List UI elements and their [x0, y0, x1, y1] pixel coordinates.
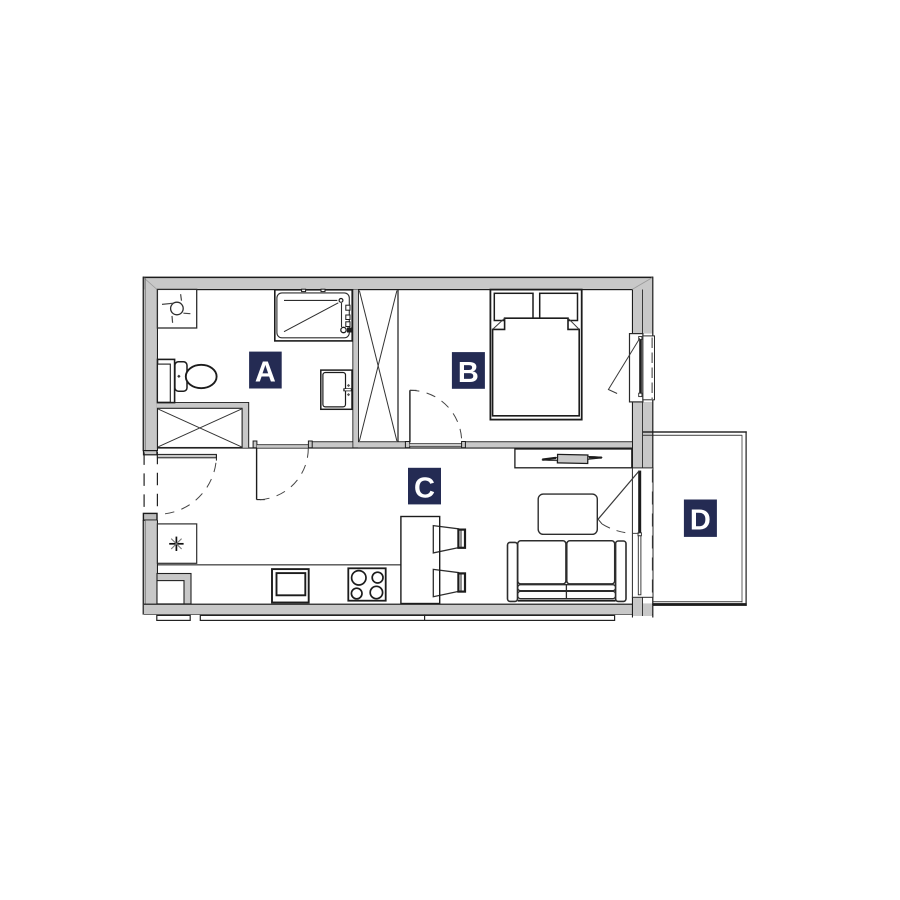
svg-text:C: C: [414, 473, 435, 505]
svg-text:D: D: [690, 504, 711, 536]
svg-text:A: A: [255, 357, 276, 389]
svg-text:B: B: [458, 357, 479, 389]
